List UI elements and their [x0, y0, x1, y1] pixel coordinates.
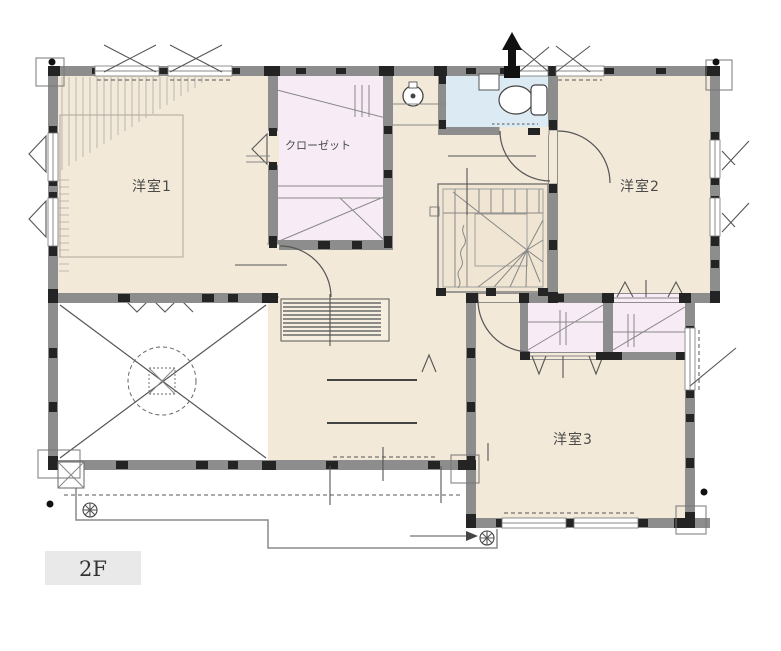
balcony-railing — [76, 486, 497, 548]
small-closets-area — [520, 298, 685, 356]
toilet-cabinet-icon — [479, 74, 499, 90]
floor-tag: 2F — [45, 551, 141, 585]
closet-label: クローゼット — [285, 139, 351, 152]
room1-label: 洋室1 — [132, 178, 172, 195]
pillar-dot-ne — [713, 59, 720, 66]
pillar-dot-nw — [49, 59, 56, 66]
closet-area — [275, 76, 387, 246]
floor-plan-canvas: 洋室1 クローゼット 洋室2 洋室3 2F — [0, 0, 781, 651]
wall-closet-south — [268, 240, 393, 250]
room2-door-opening — [549, 130, 557, 184]
slope-arrow-head — [466, 531, 478, 541]
wall-closet-east — [383, 76, 393, 250]
floor-tag-label: 2F — [79, 557, 107, 581]
pillar-dot-se — [701, 489, 708, 496]
casement-triangles-west — [29, 136, 46, 237]
balcony-drain-icon-2 — [480, 531, 494, 545]
closet-fold-opening — [267, 131, 279, 165]
casement-marks-east — [722, 141, 749, 232]
pillar-dot-sw — [47, 501, 54, 508]
toilet-door-opening — [499, 127, 549, 135]
balcony — [58, 462, 497, 548]
toilet-tank-icon — [531, 85, 547, 115]
casement-mark-room3 — [690, 348, 736, 386]
vent-arrow-head — [502, 32, 522, 50]
floor-plan-drawing: 洋室1 クローゼット 洋室2 洋室3 2F — [0, 0, 781, 651]
balcony-drain-icon — [83, 503, 97, 517]
exhaust-fan-center — [411, 94, 416, 99]
fan-notch — [409, 82, 417, 88]
room1-door-opening — [267, 244, 279, 297]
room2-label: 洋室2 — [620, 178, 660, 195]
toilet-fixture-icon — [499, 86, 533, 114]
hallway-area — [268, 250, 466, 470]
vent-base — [504, 66, 520, 78]
room3-label: 洋室3 — [553, 431, 593, 448]
